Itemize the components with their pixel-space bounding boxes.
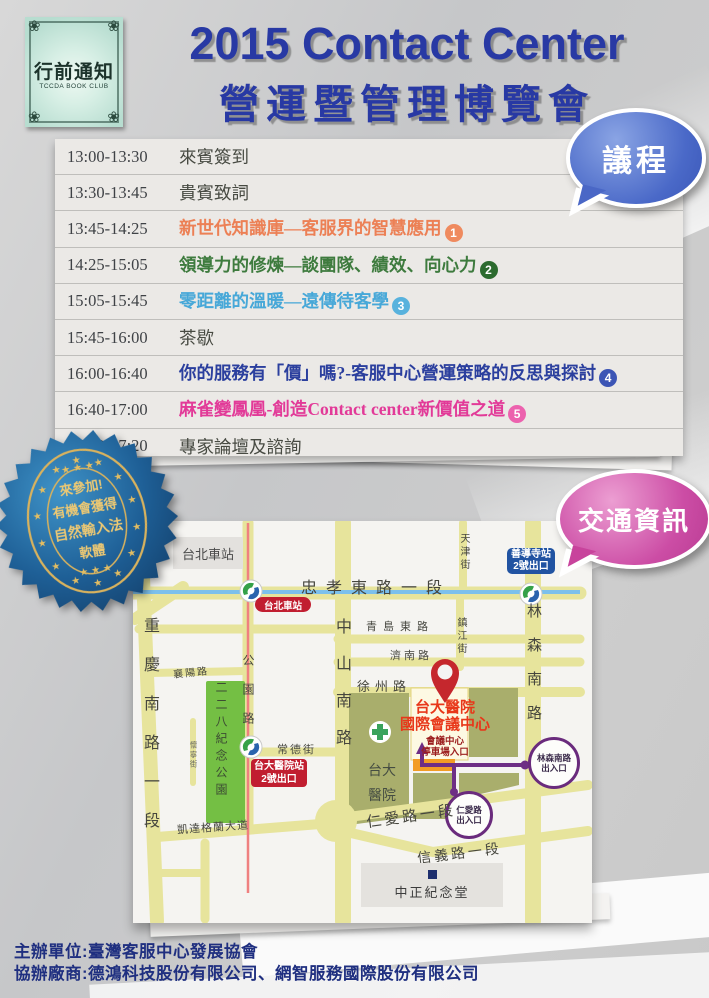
agenda-event: 新世代知識庫—客服界的智慧應用1: [179, 215, 463, 242]
session-number-badge: 4: [599, 369, 617, 387]
svg-text:★: ★: [32, 511, 43, 523]
svg-text:★: ★: [51, 561, 62, 573]
prize-starburst-badge: ★★★★★★★★★★★★★★★ ★ ★★ ★ ★ 來參加! 有機會獲得 自然輸入…: [0, 413, 195, 628]
metro-icon: [520, 583, 542, 605]
road-label-jinan: 濟南路: [390, 647, 432, 663]
svg-text:★: ★: [93, 577, 104, 589]
road-label-chongqing: 重慶南路一段: [137, 617, 161, 851]
ntuh-station-line1: 台大醫院站: [254, 760, 304, 773]
icc-line2: 國際會議中心: [388, 716, 502, 733]
agenda-event: 你的服務有「價」嗎?-客服中心營運策略的反思與探討4: [179, 360, 617, 387]
road-label-zhenjiang: 鎮江街: [453, 617, 468, 656]
svg-text:★: ★: [113, 471, 124, 483]
shandao-station-label: 善導寺站 2號出口: [507, 548, 555, 574]
ntuh-line1: 台大: [361, 759, 403, 784]
logo-subtitle: TCCDA BOOK CLUB: [25, 83, 123, 90]
icc-line1: 台大醫院: [388, 699, 502, 716]
flourish-icon: ❀: [28, 110, 41, 125]
agenda-row: 15:05-15:45 零距離的溫暖—遠傳待客學3: [55, 284, 683, 320]
linsen-exit-line1: 林森南路: [537, 753, 571, 763]
agenda-time: 13:45-14:25: [67, 219, 179, 239]
park-228-label: 二二八紀念公園: [213, 681, 230, 800]
road-label-linsen: 林森南路: [523, 603, 544, 739]
ntuh-station-label: 台大醫院站 2號出口: [251, 759, 307, 787]
agenda-event: 專家論壇及諮詢: [179, 434, 302, 459]
organizer-line: 主辦單位:臺灣客服中心發展協會: [14, 941, 479, 963]
ntuh-line2: 醫院: [361, 784, 403, 809]
svg-text:★: ★: [93, 457, 104, 469]
parking-line2: 停車場入口: [403, 747, 487, 758]
svg-text:★: ★: [37, 538, 48, 550]
cks-text: 中正紀念堂: [394, 882, 469, 901]
linsen-exit-line2: 出入口: [541, 763, 567, 773]
ntuh-label: 台大 醫院: [361, 759, 403, 809]
session-number-badge: 5: [508, 405, 526, 423]
agenda-event-text: 新世代知識庫—客服界的智慧應用: [179, 218, 442, 238]
session-number-badge: 2: [480, 261, 498, 279]
traffic-badge-label: 交通資訊: [578, 501, 690, 538]
agenda-event: 茶歇: [179, 325, 214, 350]
cks-memorial-label: 中正紀念堂: [361, 863, 503, 907]
parking-entrance-label: 會議中心 停車場入口: [403, 736, 487, 758]
svg-text:★: ★: [127, 494, 138, 506]
traffic-info-badge: 交通資訊: [556, 469, 709, 569]
svg-text:★: ★: [131, 521, 142, 533]
icc-label: 台大醫院 國際會議中心: [388, 699, 502, 733]
agenda-badge: 議程: [566, 108, 706, 208]
road-label-gongyuan: 公園路: [240, 654, 257, 741]
agenda-event: 零距離的溫暖—遠傳待客學3: [179, 288, 410, 315]
logo-title: 行前通知: [25, 57, 123, 84]
access-map: 台北車站 忠孝東路一段 天津街 善導寺站 2號出口 台北車站 青島東路 鎮江街 …: [133, 521, 592, 923]
flourish-icon: ❀: [107, 19, 120, 34]
agenda-time: 14:25-15:05: [67, 255, 179, 275]
flourish-icon: ❀: [107, 110, 120, 125]
agenda-event-text: 麻雀變鳳凰-創造Contact center新價值之道: [179, 399, 505, 419]
svg-text:★: ★: [113, 568, 124, 580]
agenda-time: 15:45-16:00: [67, 328, 179, 348]
agenda-event-text: 領導力的修煉—談團隊、績效、向心力: [179, 255, 477, 275]
agenda-event-text: 零距離的溫暖—遠傳待客學: [179, 291, 389, 311]
agenda-event: 貴賓致詞: [179, 180, 249, 205]
shandao-line1: 善導寺站: [511, 549, 551, 561]
station-area-text: 台北車站: [182, 544, 234, 563]
session-number-badge: 3: [392, 297, 410, 315]
agenda-time: 16:00-16:40: [67, 364, 179, 384]
agenda-row: 16:00-16:40 你的服務有「價」嗎?-客服中心營運策略的反思與探討4: [55, 356, 683, 392]
parking-line1: 會議中心: [403, 736, 487, 747]
metro-station-pill: 台北車站: [255, 597, 311, 612]
agenda-time: 13:00-13:30: [67, 147, 179, 167]
renai-exit-line2: 出入口: [456, 815, 482, 825]
roundabout: [315, 800, 357, 842]
session-number-badge: 1: [445, 224, 463, 242]
poster: ❀ ❀ ❀ ❀ 行前通知 TCCDA BOOK CLUB 2015 Contac…: [0, 0, 709, 998]
ntuh-station-line2: 2號出口: [254, 773, 304, 786]
linsen-exit-label: 林森南路 出入口: [528, 737, 580, 789]
organizer-info: 主辦單位:臺灣客服中心發展協會 協辦廠商:德鴻科技股份有限公司、網智服務國際股份…: [14, 941, 479, 985]
agenda-time: 15:05-15:45: [67, 291, 179, 311]
road-label-huaining: 懷寧街: [188, 741, 199, 770]
road-label-zhongshan: 中山南路: [329, 618, 353, 766]
road-label-zhongxiao: 忠孝東路一段: [301, 574, 451, 598]
agenda-row: 14:25-15:05 領導力的修煉—談團隊、績效、向心力2: [55, 248, 683, 284]
agenda-time: 13:30-13:45: [67, 183, 179, 203]
road-label-qingdao: 青島東路: [366, 618, 434, 634]
road-label-tianjin: 天津街: [456, 533, 471, 572]
agenda-event-text: 你的服務有「價」嗎?-客服中心營運策略的反思與探討: [179, 363, 596, 383]
renai-exit-line1: 仁愛路: [456, 805, 482, 815]
flourish-icon: ❀: [28, 19, 41, 34]
co-organizer-line: 協辦廠商:德鴻科技股份有限公司、網智服務國際股份有限公司: [14, 963, 479, 985]
svg-text:★: ★: [37, 484, 48, 496]
title-line1: 2015 Contact Center: [118, 18, 696, 70]
shandao-line2: 2號出口: [511, 561, 551, 573]
road-label-changde: 常德街: [277, 741, 316, 757]
club-logo: ❀ ❀ ❀ ❀ 行前通知 TCCDA BOOK CLUB: [25, 17, 123, 127]
agenda-event: 領導力的修煉—談團隊、績效、向心力2: [179, 252, 498, 279]
cks-marker-icon: [428, 870, 437, 879]
agenda-badge-label: 議程: [602, 136, 670, 180]
agenda-row: 15:45-16:00 茶歇: [55, 320, 683, 356]
agenda-event: 來賓簽到: [179, 144, 249, 169]
starburst-icon: ★★★★★★★★★★★★★★★ ★ ★★ ★ ★ 來參加! 有機會獲得 自然輸入…: [0, 413, 195, 628]
road-label-xuzhou: 徐州路: [357, 676, 411, 695]
agenda-event: 麻雀變鳳凰-創造Contact center新價值之道5: [179, 396, 526, 423]
svg-text:★: ★: [126, 548, 137, 560]
